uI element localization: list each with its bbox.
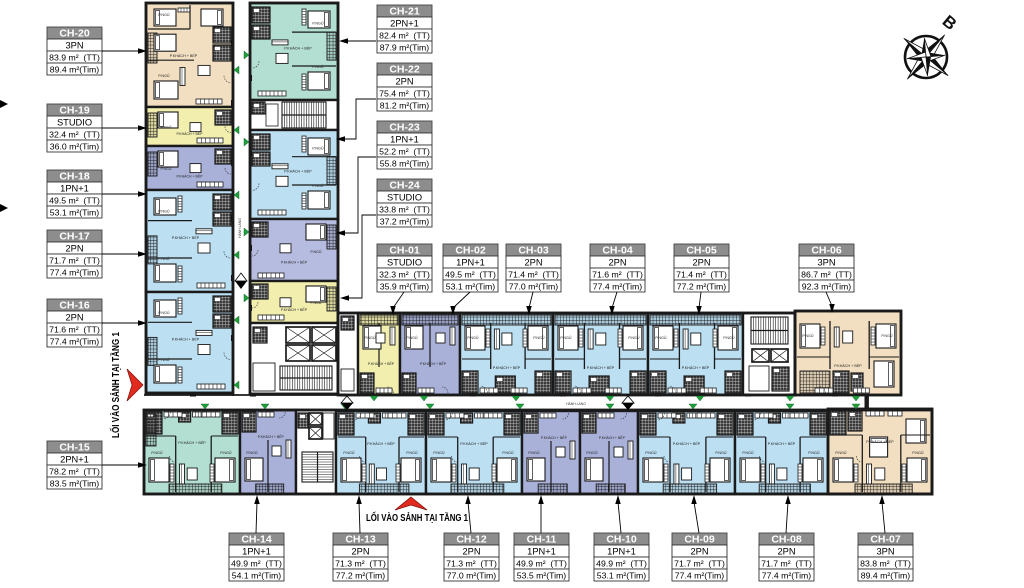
svg-text:STUDIO: STUDIO [387, 257, 422, 267]
svg-text:2PN: 2PN [608, 257, 626, 267]
svg-text:53.1 m²(Tim): 53.1 m²(Tim) [50, 207, 99, 217]
svg-text:P.NGỦ: P.NGỦ [312, 183, 324, 188]
svg-text:83.9 m² (TT): 83.9 m² (TT) [49, 52, 100, 62]
svg-text:2PN: 2PN [65, 312, 83, 322]
svg-text:71.4 m² (TT): 71.4 m² (TT) [676, 269, 727, 279]
svg-text:P.KHÁCH + BẾP: P.KHÁCH + BẾP [172, 235, 200, 240]
svg-text:3PN: 3PN [876, 546, 894, 556]
svg-text:71.3 m² (TT): 71.3 m² (TT) [335, 558, 386, 568]
svg-text:2PN+1: 2PN+1 [390, 18, 419, 28]
svg-text:CH-11: CH-11 [527, 534, 557, 546]
svg-text:2PN: 2PN [524, 257, 542, 267]
svg-text:CH-05: CH-05 [686, 245, 717, 257]
svg-text:CH-07: CH-07 [870, 534, 901, 546]
svg-text:P.NGỦ: P.NGỦ [808, 450, 820, 455]
svg-text:LỐI VÀO SẢNH TẠI TẦNG 1: LỐI VÀO SẢNH TẠI TẦNG 1 [108, 332, 122, 438]
svg-text:77.2 m²(Tim): 77.2 m²(Tim) [677, 281, 726, 291]
svg-text:P.NGỦ: P.NGỦ [158, 310, 170, 315]
svg-text:P.NGỦ: P.NGỦ [220, 450, 232, 455]
svg-text:71.4 m² (TT): 71.4 m² (TT) [508, 269, 559, 279]
svg-text:CH-20: CH-20 [59, 28, 90, 40]
svg-text:P.KHÁCH + BẾP: P.KHÁCH + BẾP [673, 441, 701, 446]
svg-text:77.0 m²(Tim): 77.0 m²(Tim) [509, 281, 558, 291]
svg-text:CH-21: CH-21 [389, 6, 420, 18]
svg-text:71.7 m² (TT): 71.7 m² (TT) [674, 558, 725, 568]
svg-text:P.NGỦ: P.NGỦ [311, 300, 322, 305]
svg-text:77.4 m²(Tim): 77.4 m²(Tim) [50, 336, 99, 346]
svg-text:71.7 m² (TT): 71.7 m² (TT) [49, 255, 100, 265]
svg-text:P.KHÁCH + BẾP: P.KHÁCH + BẾP [172, 337, 200, 342]
svg-text:P.KHÁCH + BẾP: P.KHÁCH + BẾP [281, 260, 308, 265]
svg-text:P.NGỦ: P.NGỦ [364, 335, 376, 340]
svg-text:33.8 m² (TT): 33.8 m² (TT) [379, 204, 430, 214]
svg-text:2PN: 2PN [777, 546, 795, 556]
svg-text:P.NGỦ: P.NGỦ [742, 450, 754, 455]
svg-text:77.2 m²(Tim): 77.2 m²(Tim) [336, 570, 385, 580]
svg-text:78.2 m² (TT): 78.2 m² (TT) [49, 466, 100, 476]
svg-text:71.3 m² (TT): 71.3 m² (TT) [446, 558, 497, 568]
svg-text:CH-17: CH-17 [59, 231, 90, 243]
svg-text:P.NGỦ: P.NGỦ [723, 335, 735, 340]
svg-text:71.6 m² (TT): 71.6 m² (TT) [592, 269, 643, 279]
svg-text:CH-01: CH-01 [389, 245, 420, 257]
svg-text:1PN+1: 1PN+1 [390, 134, 419, 144]
svg-text:P.NGỦ: P.NGỦ [158, 12, 170, 17]
svg-text:P.KHÁCH + BẾP: P.KHÁCH + BẾP [768, 441, 796, 446]
svg-text:P.NGỦ: P.NGỦ [912, 450, 924, 455]
svg-text:77.4 m²(Tim): 77.4 m²(Tim) [593, 281, 642, 291]
svg-text:92.3 m²(Tim): 92.3 m²(Tim) [802, 281, 851, 291]
svg-text:P.KHÁCH + BẾP: P.KHÁCH + BẾP [258, 434, 285, 439]
svg-text:P.NGỦ: P.NGỦ [560, 335, 572, 340]
svg-text:CH-24: CH-24 [389, 180, 420, 192]
svg-text:81.2 m²(Tim): 81.2 m²(Tim) [380, 100, 429, 110]
svg-text:32.3 m² (TT): 32.3 m² (TT) [379, 269, 430, 279]
svg-text:HÀNH LANG: HÀNH LANG [238, 218, 242, 238]
svg-text:P.KHÁCH + BẾP: P.KHÁCH + BẾP [284, 46, 312, 51]
svg-text:P.KHÁCH + BẾP: P.KHÁCH + BẾP [460, 441, 488, 446]
svg-text:71.7 m² (TT): 71.7 m² (TT) [761, 558, 812, 568]
svg-text:1PN+1: 1PN+1 [242, 546, 271, 556]
svg-text:P.NGỦ: P.NGỦ [312, 146, 324, 151]
svg-text:P.KHÁCH + BẾP: P.KHÁCH + BẾP [176, 174, 203, 179]
svg-text:2PN+1: 2PN+1 [60, 454, 89, 464]
svg-text:P.KHÁCH + BẾP: P.KHÁCH + BẾP [834, 363, 862, 368]
svg-text:P.KHÁCH + BẾP: P.KHÁCH + BẾP [420, 361, 447, 366]
svg-text:87.9 m²(Tim): 87.9 m²(Tim) [380, 42, 429, 52]
svg-text:P.KHÁCH + BẾP: P.KHÁCH + BẾP [170, 53, 198, 58]
svg-text:49.5 m² (TT): 49.5 m² (TT) [445, 269, 496, 279]
svg-text:P.NGỦ: P.NGỦ [433, 450, 445, 455]
svg-text:75.4 m² (TT): 75.4 m² (TT) [379, 88, 430, 98]
svg-text:2PN: 2PN [692, 257, 710, 267]
svg-text:P.NGỦ: P.NGỦ [533, 335, 545, 340]
svg-text:49.9 m² (TT): 49.9 m² (TT) [231, 558, 282, 568]
svg-text:1PN+1: 1PN+1 [607, 546, 636, 556]
svg-text:P.KHÁCH + BẾP: P.KHÁCH + BẾP [493, 365, 521, 370]
svg-text:P.NGỦ: P.NGỦ [467, 335, 479, 340]
svg-text:P.NGỦ: P.NGỦ [246, 450, 258, 455]
svg-text:P.NGỦ: P.NGỦ [835, 450, 847, 455]
svg-text:P.NGỦ: P.NGỦ [343, 450, 355, 455]
svg-text:CH-13: CH-13 [345, 534, 376, 546]
svg-text:CH-15: CH-15 [59, 442, 90, 454]
svg-text:89.4 m²(Tim): 89.4 m²(Tim) [50, 64, 99, 74]
svg-text:P.KHÁCH + BẾP: P.KHÁCH + BẾP [176, 131, 203, 136]
svg-text:1PN+1: 1PN+1 [456, 257, 485, 267]
svg-text:49.9 m² (TT): 49.9 m² (TT) [596, 558, 647, 568]
svg-text:77.4 m²(Tim): 77.4 m²(Tim) [50, 267, 99, 277]
svg-text:P.NGỦ: P.NGỦ [158, 357, 170, 362]
svg-text:CH-06: CH-06 [811, 245, 842, 257]
svg-text:P.KHÁCH + BẾP: P.KHÁCH + BẾP [284, 169, 312, 174]
svg-text:CH-08: CH-08 [771, 534, 802, 546]
svg-text:P.NGỦ: P.NGỦ [161, 166, 172, 171]
svg-text:P.KHÁCH + BẾP: P.KHÁCH + BẾP [866, 439, 894, 444]
svg-text:P.KHÁCH + BẾP: P.KHÁCH + BẾP [281, 307, 308, 312]
svg-text:CH-23: CH-23 [389, 122, 420, 134]
svg-text:P.NGỦ: P.NGỦ [628, 335, 640, 340]
svg-text:CH-16: CH-16 [59, 300, 90, 312]
svg-text:P.KHÁCH + BẾP: P.KHÁCH + BẾP [178, 440, 206, 445]
svg-text:P.NGỦ: P.NGỦ [406, 335, 418, 340]
svg-text:53.1 m²(Tim): 53.1 m²(Tim) [597, 570, 646, 580]
svg-text:P.KHÁCH + BẾP: P.KHÁCH + BẾP [599, 435, 626, 440]
svg-text:P.NGỦ: P.NGỦ [802, 333, 814, 338]
svg-text:P.NGỦ: P.NGỦ [158, 73, 170, 78]
svg-text:CH-14: CH-14 [241, 534, 272, 546]
svg-text:77.4 m²(Tim): 77.4 m²(Tim) [762, 570, 811, 580]
svg-text:2PN: 2PN [462, 546, 480, 556]
svg-text:CH-10: CH-10 [606, 534, 637, 546]
svg-text:HÀNH LANG: HÀNH LANG [566, 402, 586, 406]
svg-text:53.1 m²(Tim): 53.1 m²(Tim) [446, 281, 495, 291]
svg-text:P.NGỦ: P.NGỦ [151, 450, 163, 455]
svg-text:49.9 m² (TT): 49.9 m² (TT) [516, 558, 567, 568]
svg-text:CH-18: CH-18 [59, 171, 90, 183]
svg-text:2PN: 2PN [690, 546, 708, 556]
svg-text:55.8 m²(Tim): 55.8 m²(Tim) [380, 158, 429, 168]
svg-text:P.NGỦ: P.NGỦ [528, 450, 540, 455]
svg-text:86.7 m² (TT): 86.7 m² (TT) [801, 269, 852, 279]
svg-text:P.NGỦ: P.NGỦ [161, 124, 172, 129]
svg-text:54.1 m²(Tim): 54.1 m²(Tim) [232, 570, 281, 580]
svg-text:77.0 m²(Tim): 77.0 m²(Tim) [447, 570, 496, 580]
svg-text:53.5 m²(Tim): 53.5 m²(Tim) [517, 570, 566, 580]
svg-text:CH-22: CH-22 [389, 64, 420, 76]
svg-text:1PN+1: 1PN+1 [60, 183, 89, 193]
svg-text:STUDIO: STUDIO [57, 117, 92, 127]
svg-text:83.5 m²(Tim): 83.5 m²(Tim) [50, 478, 99, 488]
svg-text:1PN+1: 1PN+1 [527, 546, 556, 556]
svg-text:77.4 m²(Tim): 77.4 m²(Tim) [675, 570, 724, 580]
svg-text:82.4 m² (TT): 82.4 m² (TT) [379, 30, 430, 40]
svg-text:P.NGỦ: P.NGỦ [312, 20, 324, 25]
svg-text:P.KHÁCH + BẾP: P.KHÁCH + BẾP [368, 361, 395, 366]
svg-text:P.NGỦ: P.NGỦ [586, 450, 598, 455]
svg-text:2PN: 2PN [65, 243, 83, 253]
svg-text:83.8 m² (TT): 83.8 m² (TT) [860, 558, 911, 568]
svg-text:STUDIO: STUDIO [387, 192, 422, 202]
svg-text:P.NGỦ: P.NGỦ [715, 450, 727, 455]
svg-text:CH-19: CH-19 [59, 105, 90, 117]
svg-text:35.9 m²(Tim): 35.9 m²(Tim) [380, 281, 429, 291]
svg-text:2PN: 2PN [395, 76, 413, 86]
svg-text:P.KHÁCH + BẾP: P.KHÁCH + BẾP [587, 365, 615, 370]
svg-text:CH-02: CH-02 [455, 245, 486, 257]
svg-text:P.NGỦ: P.NGỦ [881, 333, 893, 338]
svg-text:P.NGỦ: P.NGỦ [655, 335, 667, 340]
svg-text:37.2 m²(Tim): 37.2 m²(Tim) [380, 216, 429, 226]
svg-text:P.KHÁCH + BẾP: P.KHÁCH + BẾP [541, 435, 568, 440]
svg-text:P.NGỦ: P.NGỦ [645, 450, 657, 455]
svg-text:P.KHÁCH + BẾP: P.KHÁCH + BẾP [367, 441, 395, 446]
svg-text:P.NGỦ: P.NGỦ [158, 256, 170, 261]
svg-text:P.KHÁCH + BẾP: P.KHÁCH + BẾP [682, 365, 710, 370]
svg-text:P.NGỦ: P.NGỦ [158, 208, 170, 213]
svg-text:P.NGỦ: P.NGỦ [406, 450, 418, 455]
svg-text:CH-03: CH-03 [518, 245, 549, 257]
svg-text:CH-12: CH-12 [456, 534, 487, 546]
svg-text:P.NGỦ: P.NGỦ [502, 450, 514, 455]
svg-text:52.2 m² (TT): 52.2 m² (TT) [379, 146, 430, 156]
svg-text:LỐI VÀO SẢNH TẠI TẦNG 1: LỐI VÀO SẢNH TẠI TẦNG 1 [366, 510, 468, 524]
svg-text:P.NGỦ: P.NGỦ [311, 249, 322, 254]
svg-text:CH-04: CH-04 [602, 245, 633, 257]
svg-text:89.4 m²(Tim): 89.4 m²(Tim) [861, 570, 910, 580]
svg-text:P.NGỦ: P.NGỦ [312, 64, 324, 69]
svg-text:36.0 m²(Tim): 36.0 m²(Tim) [50, 141, 99, 151]
svg-text:3PN: 3PN [65, 40, 83, 50]
svg-text:3PN: 3PN [817, 257, 835, 267]
svg-text:71.6 m² (TT): 71.6 m² (TT) [49, 324, 100, 334]
svg-text:CH-09: CH-09 [684, 534, 715, 546]
svg-text:2PN: 2PN [351, 546, 369, 556]
svg-text:49.5 m² (TT): 49.5 m² (TT) [49, 195, 100, 205]
svg-text:32.4 m² (TT): 32.4 m² (TT) [49, 129, 100, 139]
